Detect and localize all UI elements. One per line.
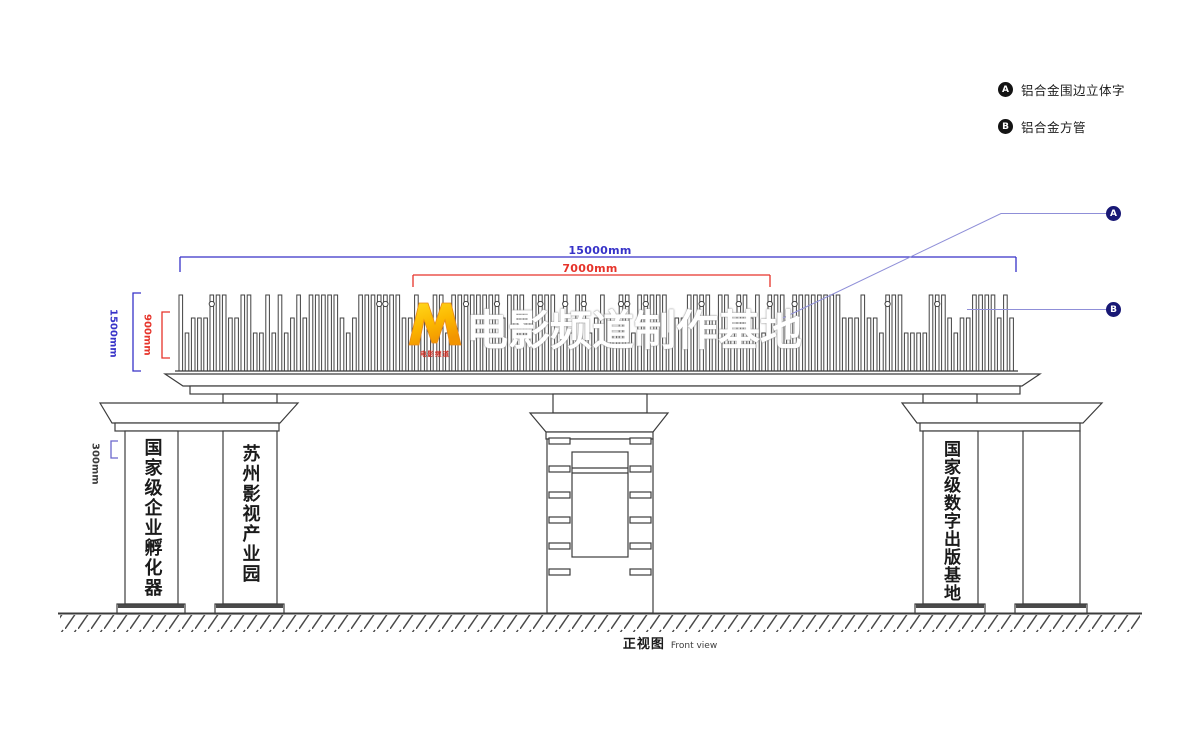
- dim-line-7000: [413, 275, 770, 287]
- sign-title: 电影频道制作基地: [466, 310, 802, 352]
- logo-m-icon: [404, 297, 466, 357]
- column-label-industry-park: 苏州影视产业园: [240, 438, 259, 590]
- legend-a-badge: A: [998, 82, 1013, 97]
- view-caption: 正视图Front view: [540, 633, 800, 652]
- callout-b-badge: B: [1106, 302, 1121, 317]
- left-column-group: [100, 403, 298, 614]
- ground: [58, 614, 1142, 633]
- legend-b-badge: B: [998, 119, 1013, 134]
- center-pillar: [530, 413, 668, 613]
- dim-label-900: 900mm: [140, 311, 154, 359]
- legend-item-b: B 铝合金方管: [998, 117, 1086, 136]
- legend-b-label: 铝合金方管: [1021, 117, 1086, 136]
- dim-line-900: [162, 312, 170, 358]
- legend-item-a: A 铝合金围边立体字: [998, 80, 1125, 99]
- callout-a-badge: A: [1106, 206, 1121, 221]
- column-label-publishing-base: 国家级数字出版基地: [941, 440, 960, 602]
- drawing-sheet: A 铝合金围边立体字 B 铝合金方管 A B 15000mm 7000mm 15…: [0, 0, 1200, 750]
- logo-subtext: 电影频道: [404, 351, 466, 358]
- column-label-incubator: 国家级企业孵化器: [142, 438, 161, 598]
- dim-label-300: 300mm: [88, 434, 102, 494]
- right-column-group: [902, 403, 1102, 614]
- caption-zh: 正视图: [623, 637, 665, 652]
- movie-channel-logo: 电影频道: [404, 297, 466, 357]
- dim-label-1500: 1500mm: [106, 295, 120, 371]
- dim-label-15000: 15000mm: [450, 244, 750, 257]
- legend-a-label: 铝合金围边立体字: [1021, 80, 1125, 99]
- caption-en: Front view: [671, 641, 717, 651]
- dim-line-300: [111, 441, 118, 458]
- dim-label-7000: 7000mm: [440, 262, 740, 275]
